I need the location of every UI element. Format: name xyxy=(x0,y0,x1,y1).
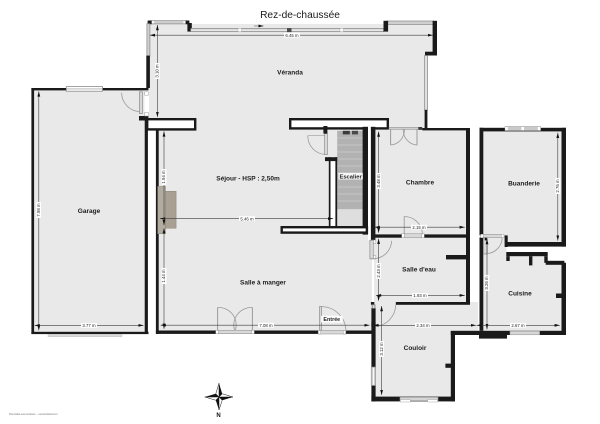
svg-text:Chambre: Chambre xyxy=(406,180,435,187)
svg-text:3.48 m: 3.48 m xyxy=(376,174,381,188)
svg-text:1.94 m: 1.94 m xyxy=(161,170,166,184)
svg-text:6.45 m: 6.45 m xyxy=(285,33,299,38)
svg-text:7.98 m: 7.98 m xyxy=(36,203,41,217)
svg-text:2.34 m: 2.34 m xyxy=(416,323,430,328)
svg-text:3.77 m: 3.77 m xyxy=(82,323,96,328)
svg-text:Buanderie: Buanderie xyxy=(508,181,540,188)
svg-text:Salle d'eau: Salle d'eau xyxy=(402,267,436,274)
svg-text:1.44 m: 1.44 m xyxy=(161,269,166,283)
svg-text:Cuisine: Cuisine xyxy=(508,291,532,298)
svg-text:3.10 m: 3.10 m xyxy=(155,64,160,78)
svg-text:Entrée: Entrée xyxy=(323,317,340,323)
svg-text:3.26 m: 3.26 m xyxy=(484,276,489,290)
svg-text:7.08 m: 7.08 m xyxy=(259,323,273,328)
svg-text:2.43 m: 2.43 m xyxy=(376,264,381,278)
svg-text:Rez-de-chaussée: Rez-de-chaussée xyxy=(260,10,340,21)
svg-text:Véranda: Véranda xyxy=(277,70,303,77)
svg-text:3.12 m: 3.12 m xyxy=(379,342,384,356)
svg-text:2.15 m: 2.15 m xyxy=(412,225,426,230)
svg-text:5.46 m: 5.46 m xyxy=(240,216,254,221)
svg-text:2.76 m: 2.76 m xyxy=(555,179,560,193)
svg-text:Séjour - HSP : 2,50m: Séjour - HSP : 2,50m xyxy=(216,176,280,183)
svg-text:N: N xyxy=(216,413,220,419)
svg-text:2.67 m: 2.67 m xyxy=(511,323,525,328)
svg-text:Couloir: Couloir xyxy=(404,345,427,352)
svg-text:1.93 m: 1.93 m xyxy=(413,293,427,298)
svg-text:Salle à manger: Salle à manger xyxy=(240,280,286,287)
svg-text:Garage: Garage xyxy=(78,208,101,215)
svg-text:Plan réalisé avec kozikaza — w: Plan réalisé avec kozikaza — www.kozikaz… xyxy=(9,412,59,416)
svg-text:Escalier: Escalier xyxy=(339,174,362,180)
